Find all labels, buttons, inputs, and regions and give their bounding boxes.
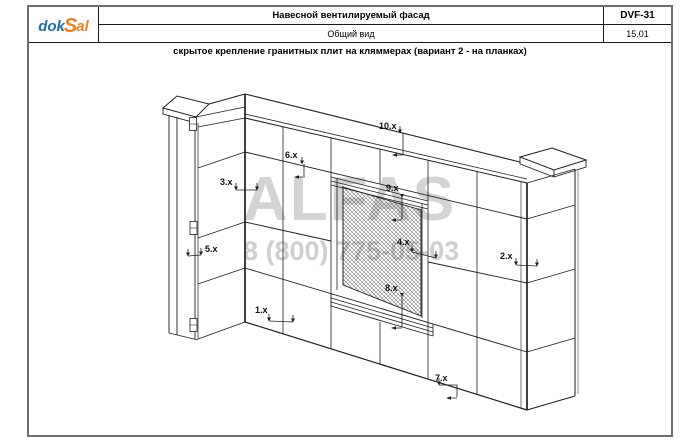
callout-2-label: 2.x [500,251,513,261]
callout-10-label: 10.x [379,121,397,131]
callout-8-label: 8.x [385,283,398,293]
callout-5-label: 5.x [205,244,218,254]
parapet-coping [163,94,527,183]
callout-7-label: 7.x [435,373,448,383]
right-corner-return [520,148,586,410]
callout-6-label: 6.x [285,150,298,160]
callout-6: 6.x [285,150,305,179]
fastening-clip [190,118,197,131]
callout-9-label: 9.x [386,183,399,193]
fastening-clip [190,222,197,235]
drawing-sheet: ALFAS 8 (800) 775-05-03 [0,0,700,442]
callout-7: 7.x [435,373,457,400]
callout-1: 1.x [255,305,295,323]
callout-4-label: 4.x [397,237,410,247]
facade-drawing: 1.x 2.x 3.x 4.x 5.x [0,0,700,442]
callout-2: 2.x [500,251,539,267]
fastening-clip [190,319,197,332]
window-opening [331,177,433,336]
callout-1-label: 1.x [255,305,268,315]
callout-3: 3.x [220,177,259,191]
window-glass-hatch [343,187,421,316]
callout-3-label: 3.x [220,177,233,187]
left-corner-profile [169,94,245,340]
callout-5: 5.x [186,244,218,257]
